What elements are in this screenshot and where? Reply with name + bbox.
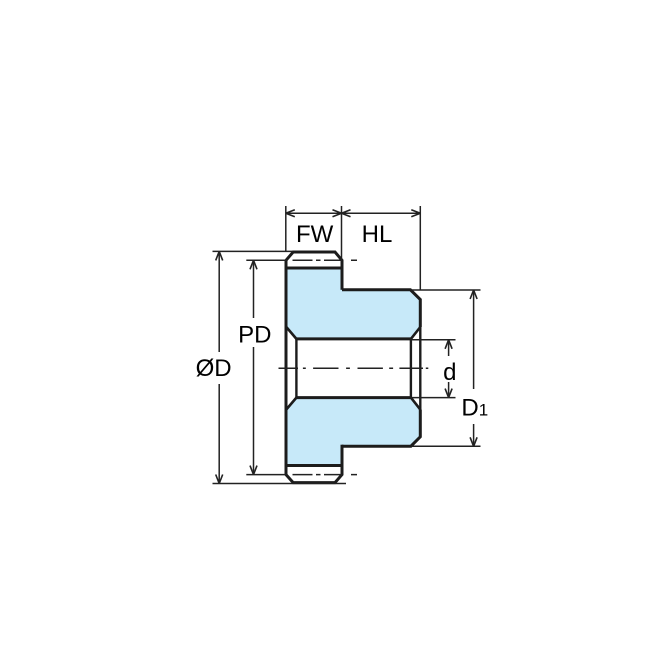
svg-text:FW: FW xyxy=(296,221,334,248)
svg-text:d: d xyxy=(443,359,456,386)
svg-text:HL: HL xyxy=(362,221,393,248)
svg-text:D1: D1 xyxy=(461,395,488,422)
svg-text:ØD: ØD xyxy=(196,355,232,382)
svg-text:PD: PD xyxy=(238,321,271,348)
